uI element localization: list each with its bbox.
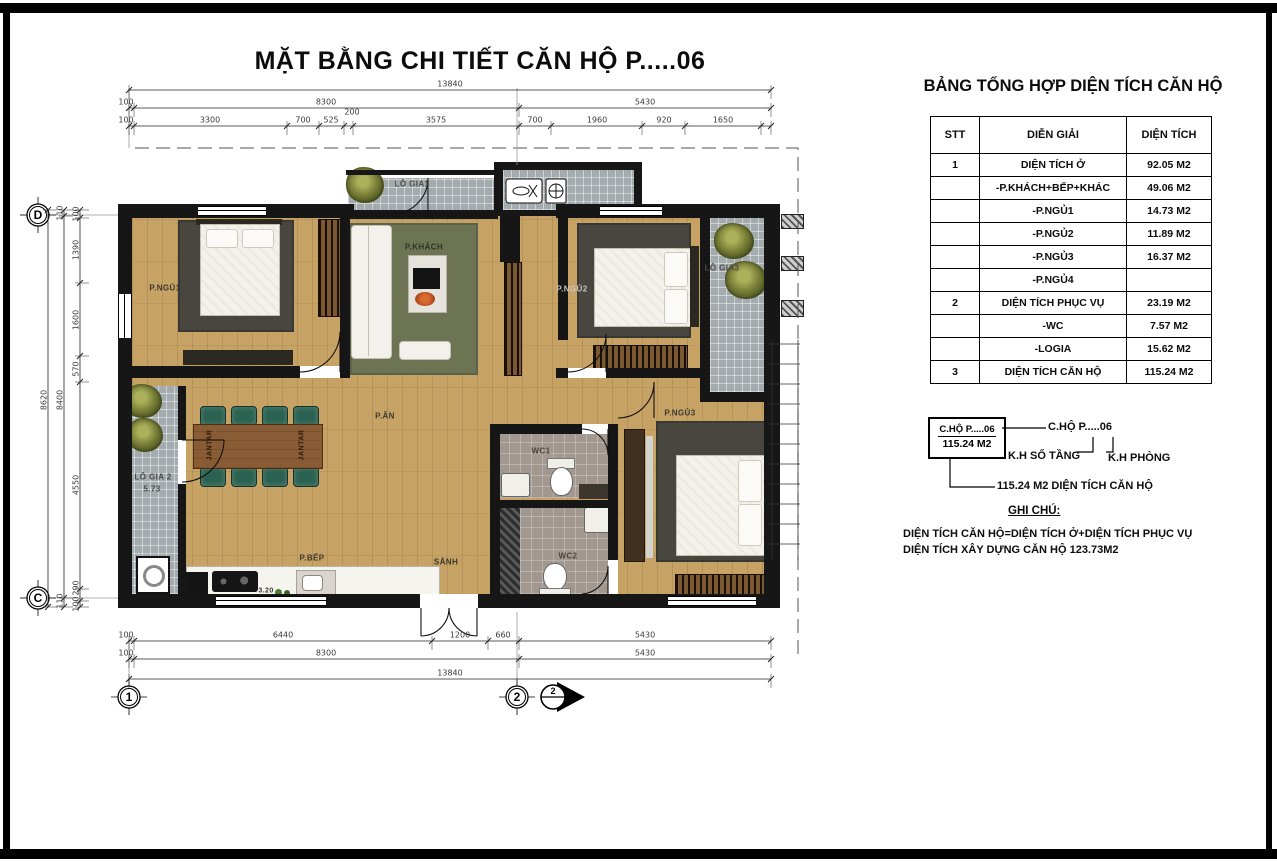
table-row: 2DIỆN TÍCH PHỤC VỤ23.19 M2 <box>931 292 1212 315</box>
dim: 570 <box>72 361 81 376</box>
cell-value: 16.37 M2 <box>1127 246 1212 269</box>
cell-label: -WC <box>980 315 1127 338</box>
wall <box>500 214 520 262</box>
section-marker <box>541 682 585 712</box>
ac-ledge <box>781 300 804 317</box>
frame-right <box>1266 13 1272 849</box>
table-row: -P.NGỦ114.73 M2 <box>931 200 1212 223</box>
note-line-1: DIỆN TÍCH CĂN HỘ=DIỆN TÍCH Ở+DIỆN TÍCH P… <box>903 528 1192 540</box>
wall <box>340 214 350 378</box>
cell-value: 7.57 M2 <box>1127 315 1212 338</box>
corridor-wardrobe <box>504 262 522 376</box>
dim: 5430 <box>635 649 655 658</box>
table-row: 1DIỆN TÍCH Ở92.05 M2 <box>931 154 1212 177</box>
dim: 920 <box>656 116 671 125</box>
cell-stt <box>931 177 980 200</box>
bed3-pillow <box>738 460 762 502</box>
col-header-dien-giai: DIỄN GIẢI <box>980 117 1127 154</box>
dining-table-label: JANTAR <box>299 430 306 461</box>
table-row: -P.NGỦ211.89 M2 <box>931 223 1212 246</box>
cell-label: -P.NGỦ3 <box>980 246 1127 269</box>
coffee-table-tray <box>413 268 440 289</box>
cell-stt: 3 <box>931 361 980 384</box>
dining-table-label: JANTAR <box>207 430 214 461</box>
ottoman <box>399 341 451 360</box>
entrance-opening <box>420 594 478 608</box>
col-header-dien-tich: DIỆN TÍCH <box>1127 117 1212 154</box>
cell-value: 23.19 M2 <box>1127 292 1212 315</box>
wc1-sink <box>501 473 530 497</box>
dim: 13840 <box>437 669 462 678</box>
dim: 100 <box>118 631 133 640</box>
cell-stt: 1 <box>931 154 980 177</box>
wall <box>128 366 302 378</box>
cell-stt <box>931 338 980 361</box>
wc2-label: WC2 <box>559 552 578 561</box>
dim: 8300 <box>316 649 336 658</box>
window <box>118 294 132 338</box>
cell-label: DIỆN TÍCH Ở <box>980 154 1127 177</box>
dim: 13840 <box>437 80 462 89</box>
sofa <box>351 225 392 359</box>
plant <box>714 223 754 259</box>
wall <box>490 424 500 598</box>
cell-label: -P.NGỦ2 <box>980 223 1127 246</box>
loggia1-label: LÔ GIA1 <box>395 180 430 189</box>
cell-value <box>1127 269 1212 292</box>
dining-chair <box>293 467 319 487</box>
window <box>600 206 662 216</box>
dim: 290 <box>72 580 81 595</box>
wall <box>178 386 186 444</box>
window <box>216 596 326 606</box>
grid-label-c: C <box>34 591 43 605</box>
loggia3-label: LÔ GIA3 <box>705 264 740 273</box>
cell-label: DIỆN TÍCH PHỤC VỤ <box>980 292 1127 315</box>
table-header-row: STT DIỄN GIẢI DIỆN TÍCH <box>931 117 1212 154</box>
cell-stt <box>931 200 980 223</box>
bed2-headboard <box>690 246 699 327</box>
wall <box>118 204 132 608</box>
wall <box>493 500 615 508</box>
cell-stt <box>931 223 980 246</box>
cell-label: -P.NGỦ4 <box>980 269 1127 292</box>
cell-value: 11.89 M2 <box>1127 223 1212 246</box>
unit-key-code: C.HỘ P.....06 <box>938 424 995 437</box>
grid-label-2: 2 <box>514 690 521 704</box>
col-header-stt: STT <box>931 117 980 154</box>
table-row: -P.NGỦ4 <box>931 269 1212 292</box>
dim: 100 <box>72 206 81 221</box>
cell-stt <box>931 315 980 338</box>
sofa-seam <box>368 226 369 356</box>
sink-basin <box>302 575 323 591</box>
dining-chair <box>293 406 319 426</box>
dim: 6440 <box>273 631 293 640</box>
dim: 100 <box>118 649 133 658</box>
dim: 1960 <box>587 116 607 125</box>
wall <box>558 214 568 340</box>
cell-value: 15.62 M2 <box>1127 338 1212 361</box>
dining-chair <box>231 467 257 487</box>
cell-label: DIỆN TÍCH CĂN HỘ <box>980 361 1127 384</box>
door-opening <box>568 368 606 378</box>
cell-value: 115.24 M2 <box>1127 361 1212 384</box>
grid-label-d: D <box>34 208 43 222</box>
summary-table-title: BẢNG TỔNG HỢP DIỆN TÍCH CĂN HỘ <box>900 77 1246 96</box>
dining-chair <box>262 406 288 426</box>
bedroom3-runner <box>646 436 653 558</box>
note-line-2: DIỆN TÍCH XÂY DỰNG CĂN HỘ 123.73M2 <box>903 544 1119 556</box>
cell-label: -P.NGỦ1 <box>980 200 1127 223</box>
dim: 660 <box>495 631 510 640</box>
bedroom3-label: P.NGỦ3 <box>664 409 695 418</box>
cooktop <box>212 571 258 592</box>
drawing-sheet: MẶT BẰNG CHI TIẾT CĂN HỘ P.....06 BẢNG T… <box>0 0 1277 861</box>
table-row: -LOGIA15.62 M2 <box>931 338 1212 361</box>
dim: 1650 <box>713 116 733 125</box>
food-dish <box>415 292 435 306</box>
notes-title: GHI CHÚ: <box>1008 505 1060 517</box>
dim: 1390 <box>72 240 81 260</box>
dim: 1200 <box>450 631 470 640</box>
frame-top <box>0 3 1277 13</box>
window <box>198 206 266 216</box>
dim: 1600 <box>72 310 81 330</box>
grid-label-1: 1 <box>126 690 133 704</box>
shaft-hatch <box>498 506 520 594</box>
door-opening <box>300 366 340 378</box>
dim: 5430 <box>635 631 655 640</box>
page-title: MẶT BẰNG CHI TIẾT CĂN HỘ P.....06 <box>160 47 800 76</box>
wall <box>764 204 780 608</box>
wc2-toilet <box>543 563 567 591</box>
loggia2-area: 5.73 <box>143 485 160 494</box>
loggia2-label: LÔ GIA 2 <box>134 473 171 482</box>
dim: 8620 <box>40 390 49 410</box>
area-summary-table: STT DIỄN GIẢI DIỆN TÍCH 1DIỆN TÍCH Ở92.0… <box>930 116 1212 384</box>
loggia1-railing <box>346 170 496 175</box>
hall-label: SẢNH <box>434 558 458 567</box>
unit-key-box: C.HỘ P.....06 115.24 M2 <box>928 417 1006 459</box>
table-row: -WC7.57 M2 <box>931 315 1212 338</box>
dim: 3575 <box>426 116 446 125</box>
table-row: -P.NGỦ316.37 M2 <box>931 246 1212 269</box>
bedroom1-label: P.NGỦ1 <box>149 284 180 293</box>
dim: 200 <box>344 108 359 117</box>
dim: 100 <box>118 98 133 107</box>
dining-label: P.ĂN <box>375 412 395 421</box>
kitchen-label: P.BẾP <box>300 554 325 563</box>
table-row: -P.KHÁCH+BẾP+KHÁC49.06 M2 <box>931 177 1212 200</box>
cell-stt <box>931 246 980 269</box>
cell-value: 14.73 M2 <box>1127 200 1212 223</box>
dim: 8300 <box>316 98 336 107</box>
kitchen-value: 3.20 <box>258 588 273 595</box>
dining-chair <box>262 467 288 487</box>
dining-chair <box>200 467 226 487</box>
dim: 700 <box>295 116 310 125</box>
bed2-pillow <box>664 252 688 287</box>
dim: 110 <box>56 205 65 220</box>
bedroom2-wardrobe <box>593 345 688 370</box>
bed3-pillow <box>738 504 762 546</box>
wall <box>700 392 778 402</box>
wall <box>700 214 710 402</box>
cell-value: 49.06 M2 <box>1127 177 1212 200</box>
plant <box>127 418 163 452</box>
dining-chair <box>200 406 226 426</box>
bedroom2-label: P.NGỦ2 <box>556 285 587 294</box>
door-opening <box>582 424 608 434</box>
wall <box>556 204 780 218</box>
bedroom1-dresser <box>183 350 293 365</box>
frame-bottom <box>0 849 1277 859</box>
dim: 5430 <box>635 98 655 107</box>
living-label: P.KHÁCH <box>405 243 443 252</box>
wall <box>178 482 186 594</box>
section-marker-number: 2 <box>550 686 555 696</box>
dim: 3300 <box>200 116 220 125</box>
bed1-pillow <box>242 229 274 248</box>
dim: 4550 <box>72 475 81 495</box>
cell-value: 92.05 M2 <box>1127 154 1212 177</box>
bed1-pillow <box>206 229 238 248</box>
bedroom3-tv-cabinet <box>624 429 645 562</box>
dim: 525 <box>323 116 338 125</box>
wall <box>346 210 498 219</box>
area-callout: 115.24 M2 DIỆN TÍCH CĂN HỘ <box>997 480 1153 492</box>
door-opening <box>608 560 618 594</box>
frame-left <box>3 13 10 849</box>
cell-stt: 2 <box>931 292 980 315</box>
dim: 100 <box>72 596 81 611</box>
dim: 8400 <box>56 390 65 410</box>
wc1-label: WC1 <box>532 447 551 456</box>
washing-machine-door <box>143 565 165 587</box>
ac-ledge <box>781 256 804 271</box>
cell-label: -P.KHÁCH+BẾP+KHÁC <box>980 177 1127 200</box>
wc1-counter <box>579 484 608 499</box>
room-key-label: K.H PHÒNG <box>1108 452 1170 464</box>
table-row: 3DIỆN TÍCH CĂN HỘ115.24 M2 <box>931 361 1212 384</box>
dim: 100 <box>118 116 133 125</box>
ac-ledge <box>781 214 804 229</box>
cell-stt <box>931 269 980 292</box>
bed2-pillow <box>664 289 688 324</box>
window <box>668 596 756 606</box>
wc1-toilet <box>550 467 573 496</box>
floor-key-label: K.H SỐ TẦNG <box>1008 450 1080 462</box>
door-opening <box>178 440 186 484</box>
cell-label: -LOGIA <box>980 338 1127 361</box>
dim: 700 <box>527 116 542 125</box>
unit-key-area: 115.24 M2 <box>930 438 1004 450</box>
dim: 110 <box>56 593 65 608</box>
kitchen-corner-unit <box>184 572 208 596</box>
unit-callout: C.HỘ P.....06 <box>1048 421 1112 433</box>
dining-chair <box>231 406 257 426</box>
